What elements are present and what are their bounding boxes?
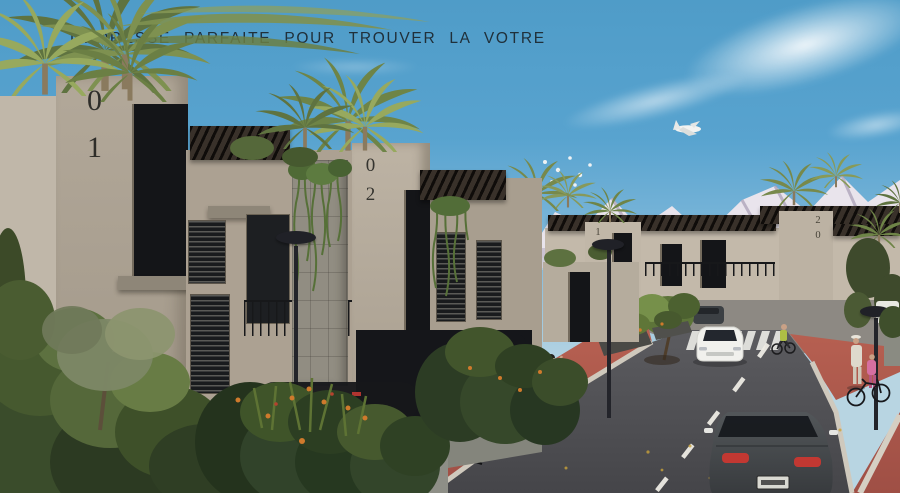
architectural-render: 19 20 <box>0 0 900 493</box>
tropical-bed-right <box>415 327 588 445</box>
right-edge-planter <box>879 306 900 366</box>
foreground-garden <box>0 0 900 493</box>
